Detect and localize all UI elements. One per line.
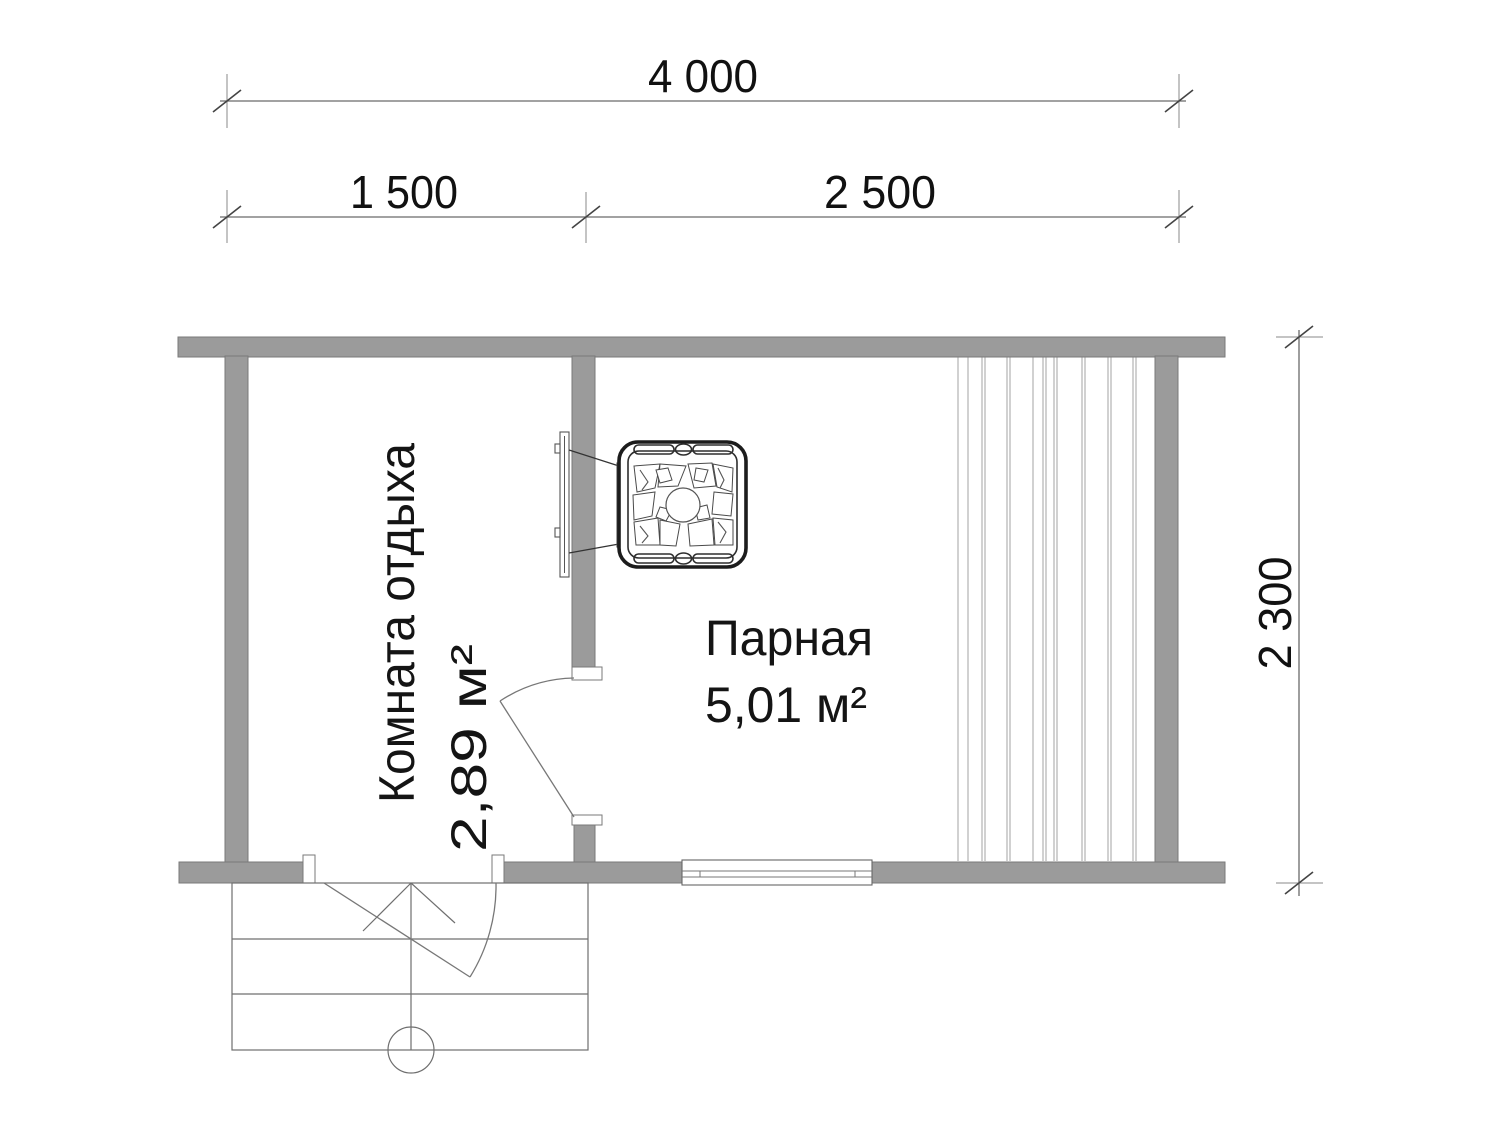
dimension-label-overall: 4 000 (648, 50, 758, 102)
partition-door-jamb (572, 815, 602, 825)
wall-bottom-segment (871, 862, 1225, 883)
door-leaf (500, 701, 574, 817)
room-name-steam-room: Парная (705, 610, 873, 666)
wall-right (1155, 356, 1178, 862)
entry-porch (232, 883, 588, 1073)
stove-chimney-circle (666, 488, 700, 522)
door-swing-arc (500, 678, 574, 701)
room-name-rest-room: Комната отдыха (369, 443, 425, 803)
dimension-sections: 1 500 2 500 (213, 166, 1193, 243)
panel-bracket (555, 444, 560, 453)
wall-left (225, 356, 248, 862)
room-area-rest-room: 2,89 м² (441, 644, 497, 852)
dimension-overall-width: 4 000 (213, 50, 1193, 128)
partition-door (500, 678, 574, 817)
floor-plan-canvas: 4 000 1 500 2 500 2 300 (0, 0, 1500, 1125)
entry-door-jamb (492, 855, 504, 883)
dimension-label-depth: 2 300 (1249, 557, 1301, 670)
entry-door-swing-arc (470, 883, 496, 977)
floor-plan-drawing: 4 000 1 500 2 500 2 300 (0, 0, 1500, 1125)
wall-partition-lower (574, 824, 595, 862)
wall-partition-upper (572, 356, 595, 667)
porch-chevron-leg (411, 883, 455, 923)
dimension-label-right-section: 2 500 (824, 166, 936, 218)
dimension-label-left-section: 1 500 (350, 166, 458, 218)
wall-bottom-segment (503, 862, 683, 883)
wall-bottom-segment (179, 862, 304, 883)
dimension-depth: 2 300 (1249, 326, 1323, 896)
porch-outline (232, 883, 588, 1050)
panel-bracket (555, 528, 560, 537)
partition-door-jamb (572, 667, 602, 680)
room-area-steam-room: 5,01 м² (705, 677, 867, 733)
walls (178, 337, 1225, 883)
entry-door-jamb (303, 855, 315, 883)
window-symbol (682, 860, 872, 885)
window-frame (682, 860, 872, 885)
wall-top (178, 337, 1225, 357)
bench-boards (958, 357, 1136, 861)
